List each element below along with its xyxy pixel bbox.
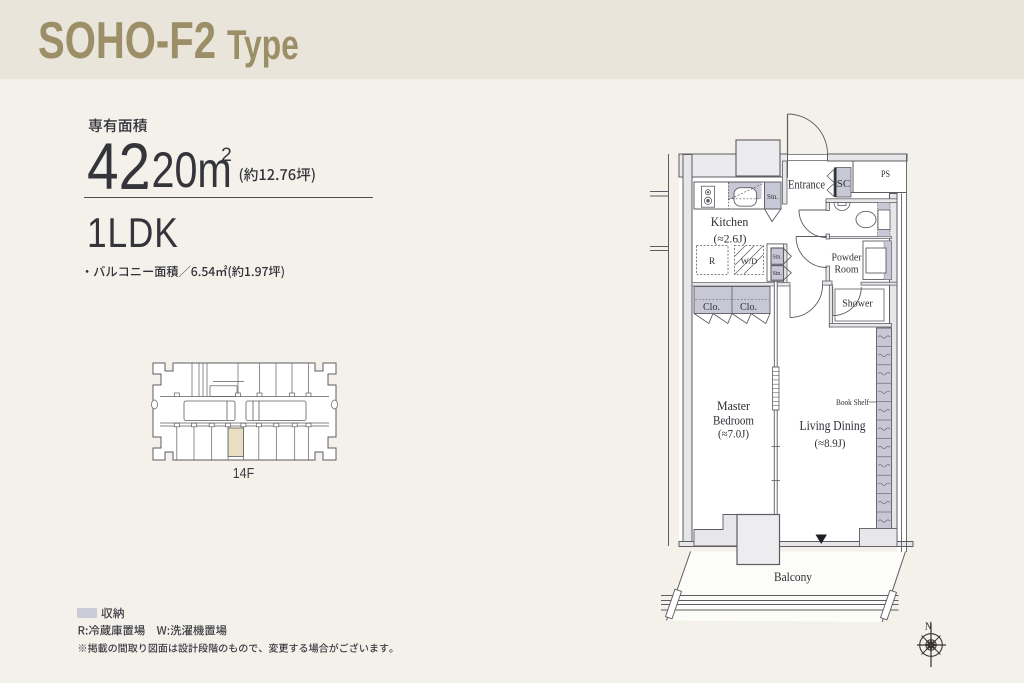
svg-text:Master: Master bbox=[717, 398, 751, 413]
svg-text:R: R bbox=[709, 257, 716, 267]
svg-text:14F: 14F bbox=[233, 466, 255, 482]
svg-text:(≈7.0J): (≈7.0J) bbox=[718, 429, 749, 441]
svg-text:(≈8.9J): (≈8.9J) bbox=[815, 436, 846, 450]
svg-text:Book Shelf: Book Shelf bbox=[836, 397, 869, 407]
svg-text:Bedroom: Bedroom bbox=[713, 413, 754, 428]
svg-text:Stn.: Stn. bbox=[773, 255, 783, 261]
svg-text:Living Dining: Living Dining bbox=[800, 419, 866, 434]
svg-text:W/D: W/D bbox=[741, 256, 758, 266]
svg-text:Shower: Shower bbox=[842, 298, 873, 310]
svg-text:Kitchen: Kitchen bbox=[711, 214, 749, 229]
svg-text:Stn.: Stn. bbox=[773, 271, 783, 277]
svg-text:SC: SC bbox=[837, 178, 850, 190]
svg-text:Room: Room bbox=[835, 264, 859, 276]
svg-text:Clo.: Clo. bbox=[703, 302, 720, 313]
svg-text:Balcony: Balcony bbox=[774, 569, 812, 584]
svg-text:(≈2.6J): (≈2.6J) bbox=[714, 234, 747, 246]
svg-text:N: N bbox=[923, 620, 934, 633]
svg-text:PS: PS bbox=[881, 170, 890, 180]
svg-text:Clo.: Clo. bbox=[740, 302, 757, 313]
svg-text:Entrance: Entrance bbox=[788, 178, 825, 192]
svg-text:Stn.: Stn. bbox=[767, 193, 778, 201]
svg-text:Powder: Powder bbox=[832, 252, 862, 264]
